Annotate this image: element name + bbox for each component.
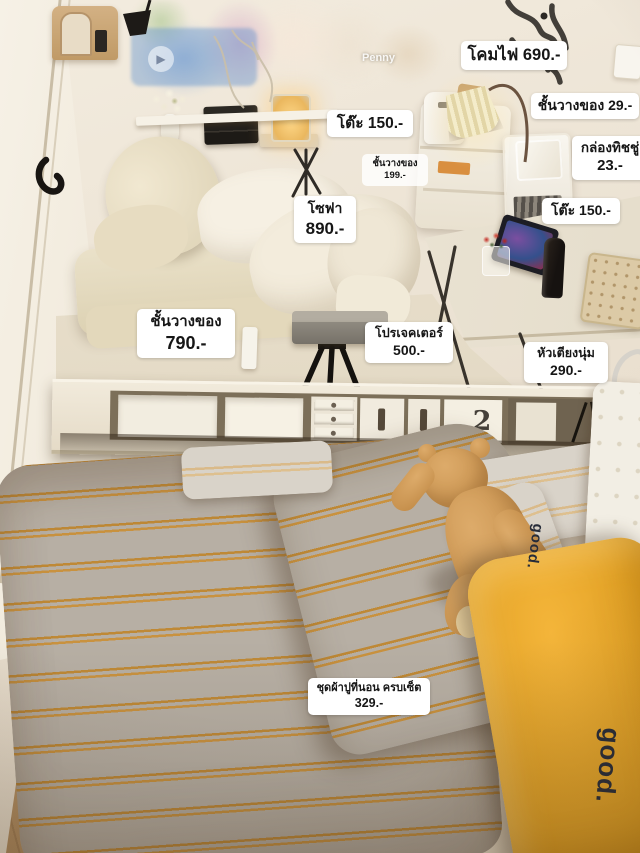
price-tag-shelf-unit: ชั้นวางของ 790.- [137, 309, 235, 358]
price-tag-tissue-line1: กล่องทิชชู่ [578, 140, 640, 157]
numbered-storage-box: 2 [444, 399, 503, 443]
price-tag-lamp: โคมไฟ 690.- [461, 41, 567, 70]
price-tag-headboard: หัวเตียงนุ่ม 290.- [524, 342, 608, 383]
storage-panel-b [225, 397, 304, 438]
console-hairpin-legs [293, 149, 320, 196]
box-number: 2 [472, 406, 491, 437]
price-tag-desk-text: โต๊ะ 150.- [548, 202, 614, 220]
price-tag-headboard-line2: 290.- [530, 362, 602, 380]
wall-art-dot [541, 13, 548, 20]
price-tag-console-table-text: โต๊ะ 150.- [333, 114, 407, 133]
price-tag-wall-shelf-text: ชั้นวางของ 29.- [537, 97, 633, 115]
price-tag-sofa: โซฟา 890.- [294, 196, 356, 243]
pencil-sketch [214, 30, 272, 108]
storage-panel-a [118, 395, 218, 438]
price-tag-cart-shelf-line1: ชั้นวางของ [368, 158, 422, 170]
price-tag-wall-shelf: ชั้นวางของ 29.- [531, 93, 639, 119]
price-tag-bedding-line2: 329.- [314, 696, 424, 712]
room-photo: ▶ Penny [0, 0, 640, 853]
slot-box-2 [408, 399, 441, 441]
price-tag-console-table: โต๊ะ 150.- [327, 110, 413, 137]
price-tag-tissue-line2: 23.- [578, 157, 640, 176]
floor-lamp-arm [489, 85, 527, 162]
price-tag-lamp-text: โคมไฟ 690.- [467, 45, 561, 66]
price-tag-sofa-line1: โซฟา [300, 200, 350, 218]
price-tag-sofa-line2: 890.- [300, 218, 350, 239]
price-tag-bedding-set: ชุดผ้าปูที่นอน ครบเซ็ต 329.- [308, 678, 430, 715]
price-tag-headboard-line1: หัวเตียงนุ่ม [530, 346, 602, 362]
slot-box-1 [360, 398, 405, 441]
price-tag-cart-shelf-line2: 199.- [368, 170, 422, 182]
price-tag-bedding-line1: ชุดผ้าปูที่นอน ครบเซ็ต [314, 682, 424, 696]
wire-recess [508, 398, 635, 446]
price-tag-shelf-unit-line1: ชั้นวางของ [143, 313, 229, 332]
door-handle-icon [39, 160, 61, 191]
mini-drawers [311, 396, 358, 441]
price-tag-desk: โต๊ะ 150.- [542, 198, 620, 224]
price-tag-projector: โปรเจคเตอร์ 500.- [365, 322, 453, 363]
price-tag-projector-line2: 500.- [371, 342, 447, 360]
price-tag-shelf-unit-line2: 790.- [143, 332, 229, 355]
price-tag-cart-shelf: ชั้นวางของ 199.- [362, 154, 428, 186]
remote-control [241, 327, 257, 369]
price-tag-projector-line1: โปรเจคเตอร์ [371, 326, 447, 342]
price-tag-tissue-box: กล่องทิชชู่ 23.- [572, 136, 640, 180]
headboard-shelf-unit: 2 [52, 379, 640, 462]
